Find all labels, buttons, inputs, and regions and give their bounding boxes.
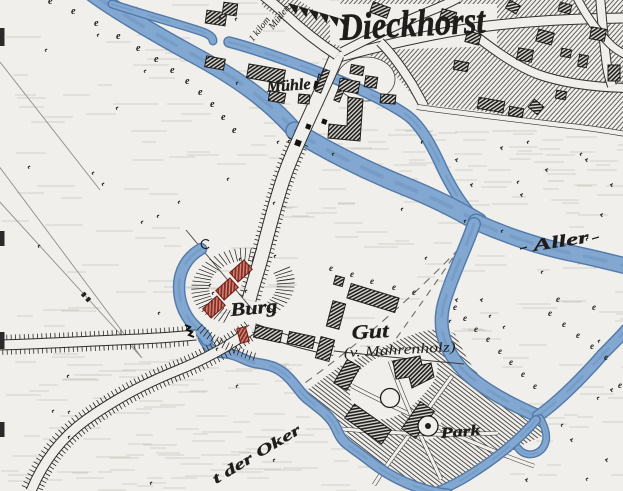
svg-text:e: e — [198, 87, 203, 98]
svg-text:e: e — [370, 276, 374, 286]
svg-text:e: e — [185, 76, 190, 87]
svg-text:e: e — [210, 99, 215, 110]
svg-text:e: e — [592, 302, 596, 312]
svg-text:e: e — [136, 43, 141, 54]
svg-text:e: e — [392, 282, 396, 292]
svg-text:e: e — [474, 324, 478, 334]
svg-text:e: e — [453, 302, 457, 312]
svg-text:e: e — [576, 330, 580, 340]
svg-text:e: e — [221, 112, 226, 123]
svg-text:e: e — [556, 294, 560, 304]
svg-text:Burg: Burg — [228, 296, 278, 321]
svg-text:e: e — [548, 308, 552, 318]
svg-text:e: e — [604, 352, 608, 362]
svg-text:e: e — [533, 381, 537, 391]
svg-text:Mühle: Mühle — [265, 76, 311, 96]
svg-text:e: e — [590, 341, 594, 351]
svg-text:Gut: Gut — [351, 320, 391, 344]
svg-text:Dieckhorst: Dieckhorst — [337, 0, 487, 49]
svg-text:e: e — [94, 18, 99, 29]
svg-text:e: e — [350, 269, 354, 279]
svg-text:e: e — [498, 346, 502, 356]
svg-text:e: e — [116, 31, 121, 42]
svg-text:e: e — [562, 319, 566, 329]
svg-text:e: e — [329, 263, 333, 273]
svg-text:e: e — [521, 369, 525, 379]
svg-text:e: e — [463, 313, 467, 323]
svg-text:e: e — [618, 380, 622, 390]
svg-text:e: e — [170, 65, 175, 76]
svg-text:e: e — [154, 54, 159, 65]
svg-text:e: e — [48, 0, 53, 7]
svg-text:e: e — [509, 357, 513, 367]
svg-text:e: e — [71, 6, 76, 17]
svg-text:e: e — [486, 334, 490, 344]
svg-text:e: e — [412, 287, 416, 297]
svg-text:e: e — [232, 125, 237, 136]
